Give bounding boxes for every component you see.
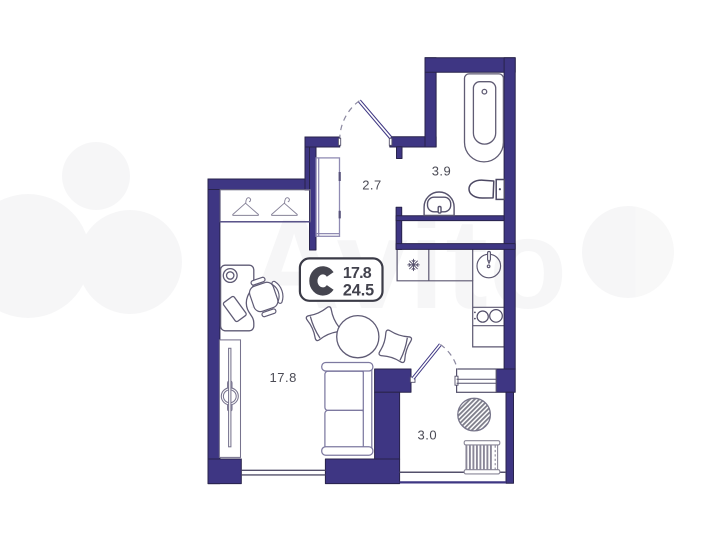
svg-text:2.7: 2.7 — [362, 178, 382, 193]
svg-text:17.8: 17.8 — [343, 265, 372, 282]
svg-text:3.0: 3.0 — [418, 427, 438, 442]
svg-text:3.9: 3.9 — [432, 164, 452, 179]
svg-text:24.5: 24.5 — [343, 281, 374, 299]
svg-text:17.8: 17.8 — [270, 370, 297, 385]
